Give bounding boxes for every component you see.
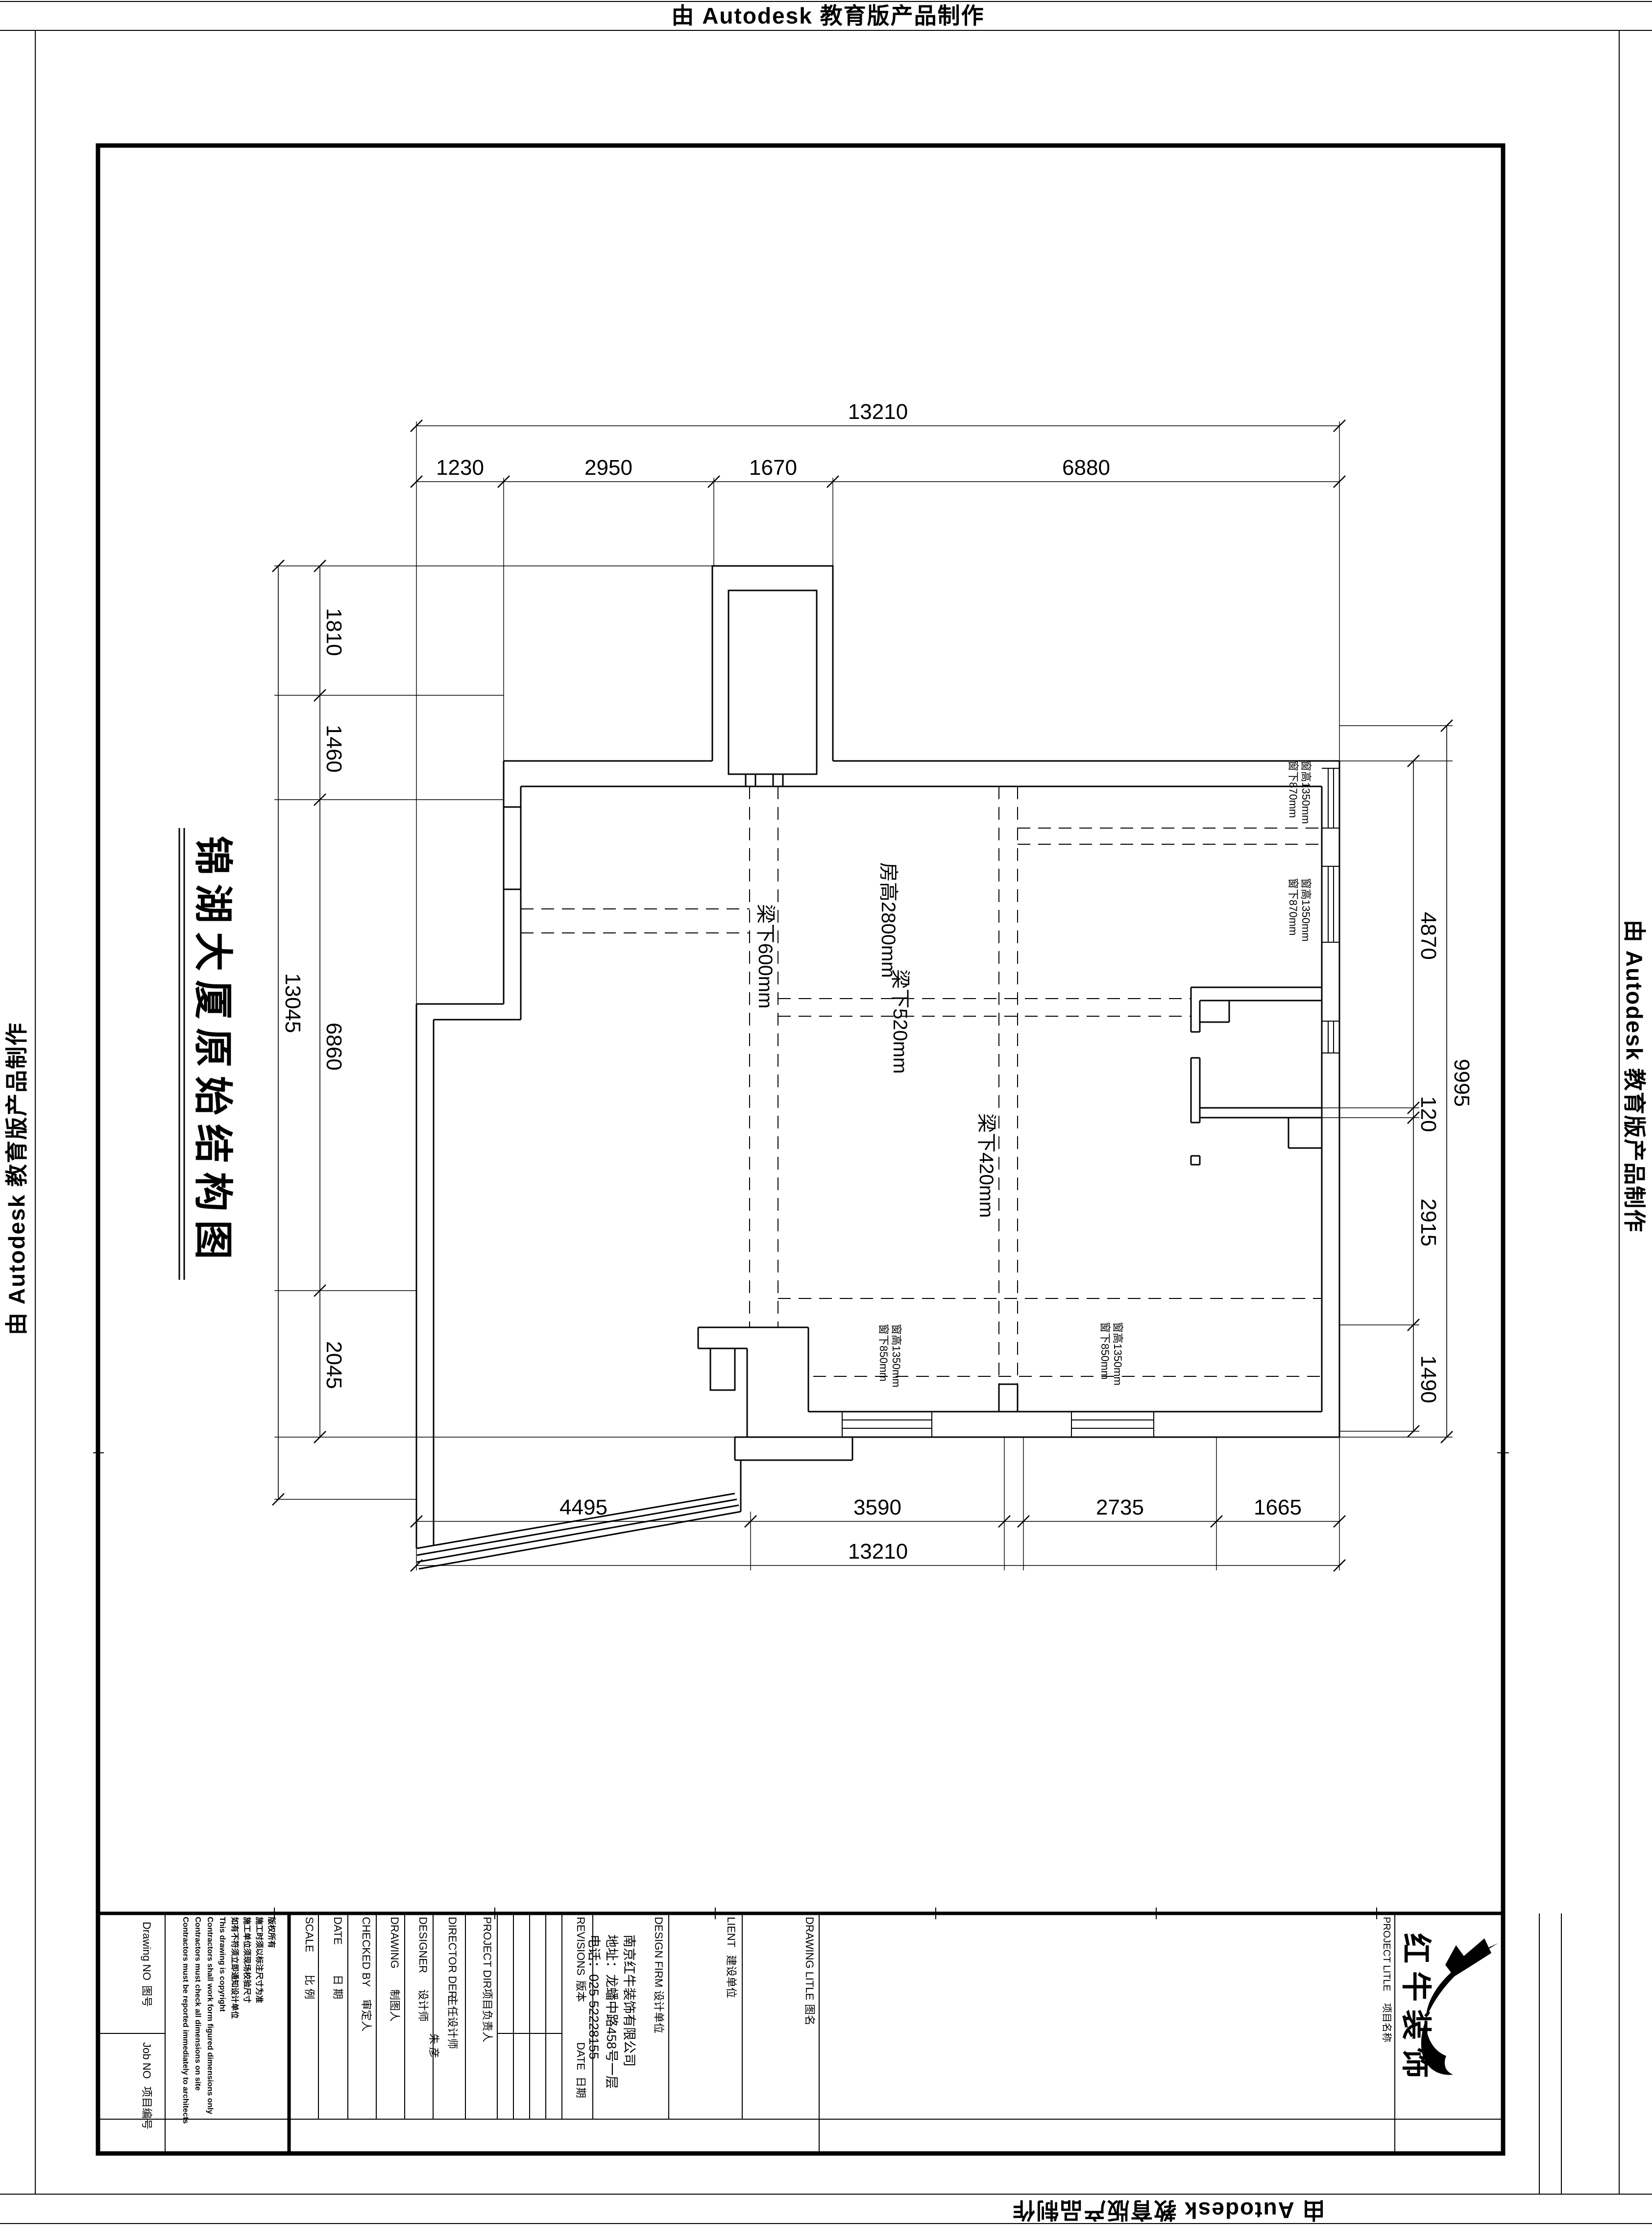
dim-right-seg: 1490 bbox=[1415, 1355, 1440, 1403]
dim-right-seg: 4870 bbox=[1415, 912, 1440, 960]
drawing-title-label-cn: 图名 bbox=[803, 2004, 816, 2026]
page-border-lines bbox=[0, 1, 1652, 2224]
dim-top-seg: 2950 bbox=[584, 456, 632, 481]
dim-right-seg: 2915 bbox=[1415, 1198, 1440, 1247]
designer-label-cn: 设计师 bbox=[417, 1989, 429, 2022]
brand-name: 红牛装饰 bbox=[1398, 1933, 1433, 2086]
banner-top: 由 Autodesk 教育版产品制作 bbox=[671, 3, 984, 29]
scale-label-cn: 比 例 bbox=[303, 1975, 316, 1999]
dim-left-seg: 1810 bbox=[321, 608, 346, 656]
drawing-by-label: DRAWING bbox=[389, 1917, 401, 1969]
dim-bottom-seg: 3590 bbox=[853, 1495, 901, 1520]
dim-bottom-total: 13210 bbox=[848, 1540, 908, 1565]
drawing-no-label: Drawing NO bbox=[141, 1922, 153, 1980]
page-title: 锦湖大厦原始结构图 bbox=[190, 836, 235, 1268]
design-firm-label: DESIGN FIRM bbox=[653, 1917, 665, 1987]
banner-bottom: 由 Autodesk 教育版产品制作 bbox=[1012, 2197, 1325, 2223]
drawing-sheet: 由 Autodesk 教育版产品制作 由 Autodesk 教育版产品制作 由 … bbox=[0, 0, 1652, 2225]
banner-left: 由 Autodesk 教育版产品制作 bbox=[4, 1022, 30, 1335]
dim-left-seg: 1460 bbox=[321, 725, 346, 773]
window-label-bottom-left: 窗高1350mm 窗下850mm bbox=[877, 1324, 902, 1388]
dim-top-total: 13210 bbox=[848, 400, 908, 425]
dimension-ticks bbox=[272, 420, 1453, 1571]
date-label: DATE bbox=[332, 1917, 344, 1945]
dim-bottom-seg: 1665 bbox=[1254, 1495, 1302, 1520]
date-label-cn: 日 期 bbox=[332, 1975, 344, 1999]
title-underline bbox=[179, 828, 184, 1280]
drawing-by-label-cn: 制图人 bbox=[389, 1989, 401, 2022]
dim-left-seg: 6860 bbox=[321, 1023, 346, 1071]
director-label: DIRECTOR DER bbox=[446, 1917, 459, 1999]
walls bbox=[416, 566, 1339, 1569]
window-symbols bbox=[842, 768, 1339, 1437]
design-firm-info: 南京红牛装饰有限公司 地址：龙蟠中路458号一层 电话：025-52228155 bbox=[585, 1934, 638, 2089]
drawing-title-label: DRAWING LITLE bbox=[803, 1917, 816, 2000]
director-value: 朱 彦 bbox=[428, 2033, 440, 2058]
scale-label: SCALE bbox=[303, 1917, 316, 1952]
dim-left-total: 13045 bbox=[280, 973, 305, 1033]
beam-520-label: 梁下520mm bbox=[889, 969, 911, 1074]
dim-right-seg: 120 bbox=[1415, 1096, 1440, 1132]
dim-top-seg: 1230 bbox=[436, 456, 484, 481]
design-firm-label-cn: 设计单位 bbox=[653, 1990, 665, 2033]
beam-dashed-lines bbox=[521, 786, 1322, 1384]
dim-right-total: 9995 bbox=[1449, 1059, 1474, 1107]
drawing-no-label-cn: 图号 bbox=[141, 1985, 153, 2007]
director-label-cn: 主任设计师 bbox=[446, 1995, 459, 2049]
window-label-right-upper: 窗高1350mm 窗下870mm bbox=[1287, 760, 1312, 824]
project-dir-label-cn: 项目负责人 bbox=[481, 1988, 493, 2042]
project-title-label: PROJECT LITLE bbox=[1381, 1917, 1392, 1991]
window-label-right-lower: 窗高1350mm 窗下870mm bbox=[1287, 878, 1312, 942]
project-title-label-cn: 项目名称 bbox=[1381, 2003, 1392, 2042]
banner-right: 由 Autodesk 教育版产品制作 bbox=[1621, 920, 1647, 1233]
floorplan-linework bbox=[0, 0, 1652, 2225]
window-label-bottom-right: 窗高1350mm 窗下850mm bbox=[1098, 1322, 1124, 1386]
designer-label: DESIGNER bbox=[417, 1917, 429, 1973]
job-no-label: Job NO bbox=[141, 2042, 153, 2079]
dim-top-seg: 6880 bbox=[1062, 456, 1110, 481]
client-label: LIENT bbox=[725, 1917, 737, 1947]
frame bbox=[98, 146, 1503, 2153]
dim-left-seg: 2045 bbox=[321, 1341, 346, 1389]
checked-by-label-cn: 审定人 bbox=[360, 1999, 372, 2031]
checked-by-label: CHECKED BY bbox=[360, 1917, 372, 1987]
client-label-cn: 建设单位 bbox=[725, 1955, 737, 1998]
copyright-notes: 版权所有 施工时须以标注尺寸为准 施工单位须现场校验尺寸 如有不符须立即通知设计… bbox=[179, 1917, 277, 2124]
extension-lines bbox=[274, 421, 1453, 1570]
room-height-label: 房高2800mm bbox=[877, 862, 899, 978]
beam-600-label: 梁下600mm bbox=[754, 904, 777, 1008]
dim-bottom-seg: 4495 bbox=[559, 1495, 607, 1520]
dimension-lines bbox=[278, 426, 1447, 1565]
beam-420-label: 梁下420mm bbox=[975, 1113, 997, 1218]
dim-top-seg: 1670 bbox=[749, 456, 797, 481]
project-dir-label: PROJECT DIR bbox=[481, 1917, 493, 1988]
job-no-label-cn: 项目编号 bbox=[141, 2086, 153, 2129]
dim-bottom-seg: 2735 bbox=[1096, 1495, 1144, 1520]
